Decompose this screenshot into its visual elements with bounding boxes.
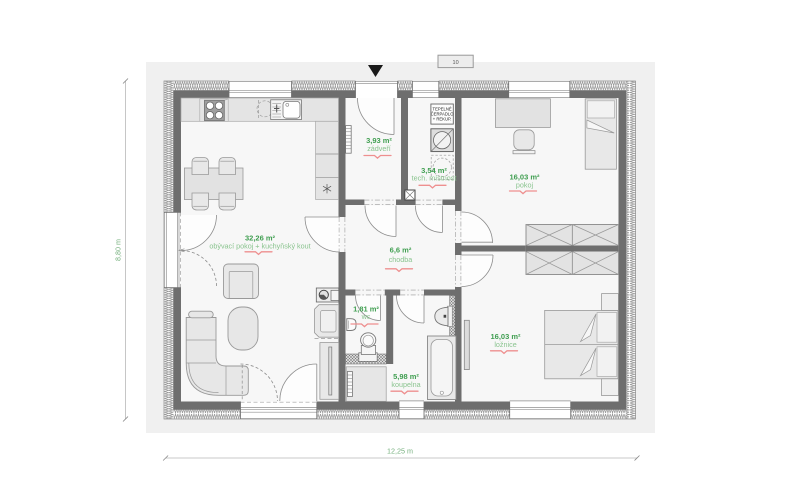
svg-text:wc: wc xyxy=(361,312,371,321)
svg-text:12,25 m: 12,25 m xyxy=(387,447,413,456)
svg-text:pokoj: pokoj xyxy=(516,180,534,189)
svg-text:8,80 m: 8,80 m xyxy=(114,239,123,261)
svg-text:tech. místnost: tech. místnost xyxy=(412,174,457,183)
svg-text:chodba: chodba xyxy=(389,255,413,264)
svg-text:obývací pokoj + kuchyňský kout: obývací pokoj + kuchyňský kout xyxy=(209,242,310,251)
svg-text:10: 10 xyxy=(453,60,459,66)
svg-text:koupelna: koupelna xyxy=(391,380,420,389)
svg-text:6,6 m²: 6,6 m² xyxy=(390,246,412,255)
svg-text:ložnice: ložnice xyxy=(494,340,516,349)
svg-text:+ REKUP.: + REKUP. xyxy=(433,117,452,122)
svg-text:zádveří: zádveří xyxy=(367,144,391,153)
